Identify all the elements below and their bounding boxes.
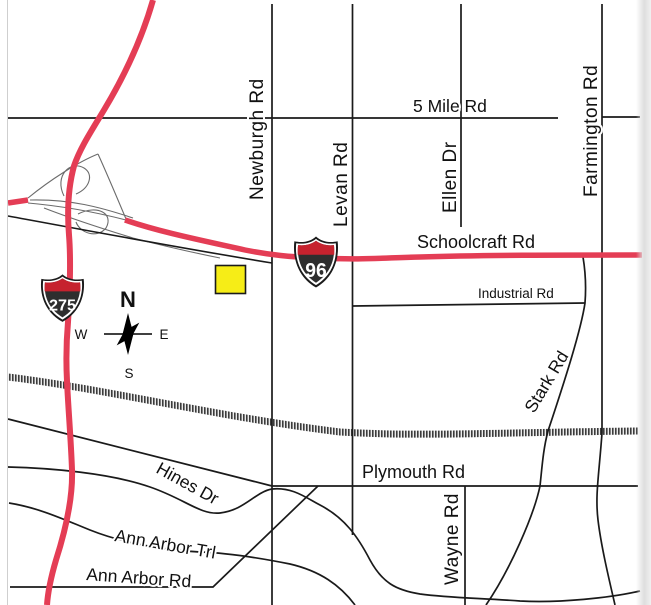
compass-south-label: S xyxy=(124,366,133,381)
road-label-five-mile: 5 Mile Rd xyxy=(413,96,487,116)
i96-shield-number: 96 xyxy=(305,260,326,283)
road-label-ann-arbor-trl: Ann Arbor Trl xyxy=(113,525,217,562)
road-label-wayne: Wayne Rd xyxy=(442,493,463,585)
compass-east-label: E xyxy=(159,327,168,342)
road-label-levan: Levan Rd xyxy=(331,142,352,227)
highway-line-i96-west-stub xyxy=(8,200,28,203)
compass-west-label: W xyxy=(75,327,88,342)
compass-north-label: N xyxy=(120,287,136,312)
i96-shield: 96 xyxy=(294,236,338,287)
i275-shield-number: 275 xyxy=(49,297,76,315)
road-label-industrial: Industrial Rd xyxy=(478,286,554,301)
road-label-hines: Hines Dr xyxy=(153,458,222,509)
road-line-plymouth-west-slant xyxy=(8,419,272,486)
road-line-industrial xyxy=(353,303,585,306)
highway-line-i96 xyxy=(125,220,642,259)
road-label-ellen: Ellen Dr xyxy=(440,141,461,213)
cloverleaf-interchange xyxy=(28,154,220,258)
yellow-square-marker xyxy=(216,266,246,294)
road-label-newburgh: Newburgh Rd xyxy=(247,78,268,200)
road-label-plymouth: Plymouth Rd xyxy=(362,462,465,482)
page-left-border xyxy=(7,0,8,605)
road-label-farmington: Farmington Rd xyxy=(581,65,602,197)
compass-rose: N W E S xyxy=(75,287,169,381)
i275-shield: 275 xyxy=(41,274,84,321)
map-viewport: 275 96 N W E S 5 Mile Rd Newburgh Rd Lev… xyxy=(0,0,651,605)
road-label-schoolcraft: Schoolcraft Rd xyxy=(417,232,535,252)
interchange-ramp-loop xyxy=(76,210,108,234)
interchange-ramp xyxy=(28,154,98,198)
page-right-shadow xyxy=(636,0,651,605)
map-canvas: 275 96 N W E S 5 Mile Rd Newburgh Rd Lev… xyxy=(0,0,651,605)
compass-star-icon xyxy=(104,313,152,355)
